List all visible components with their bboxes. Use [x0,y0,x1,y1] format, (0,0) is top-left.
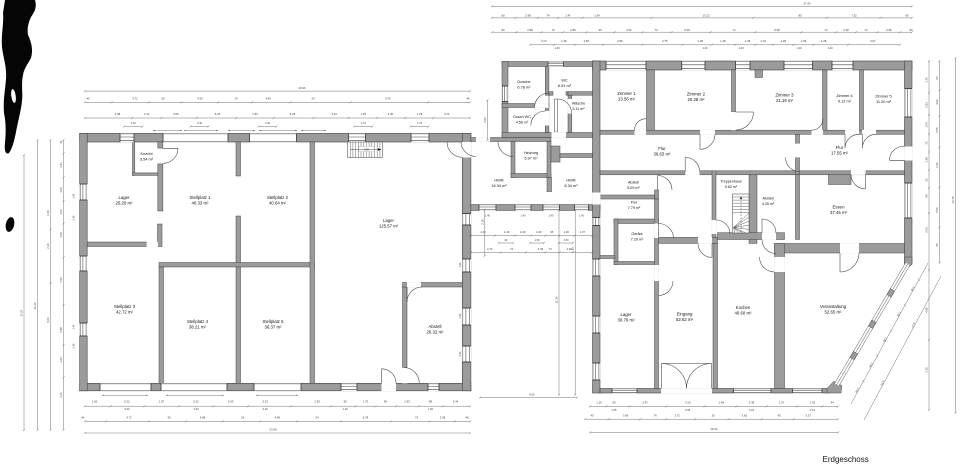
svg-text:Zimmer 3: Zimmer 3 [775,93,794,98]
svg-text:3.10: 3.10 [685,401,691,405]
svg-text:6.78 m²: 6.78 m² [517,84,531,89]
svg-text:Abstell: Abstell [762,197,773,201]
svg-text:WC: WC [561,78,568,83]
svg-text:3.66: 3.66 [623,413,629,417]
svg-text:24: 24 [234,97,238,101]
svg-text:Essen: Essen [833,205,846,210]
svg-text:30.79 m²: 30.79 m² [618,317,636,322]
svg-text:5.25: 5.25 [290,112,296,116]
svg-text:Kochen: Kochen [736,305,751,310]
svg-text:46: 46 [86,97,90,101]
svg-text:Stellplatz 5: Stellplatz 5 [262,319,284,324]
svg-text:11.34: 11.34 [555,296,559,303]
svg-text:4.56 m²: 4.56 m² [516,120,529,124]
svg-text:74: 74 [415,416,419,420]
svg-text:1.30: 1.30 [925,367,929,373]
svg-text:9.02: 9.02 [529,393,535,397]
svg-text:9.06: 9.06 [46,317,50,323]
svg-text:2.80: 2.80 [617,39,623,43]
svg-text:3.32: 3.32 [331,112,337,116]
svg-text:4.90: 4.90 [275,416,281,420]
svg-text:Lager: Lager [119,195,131,200]
svg-text:24: 24 [316,416,320,420]
svg-text:1.28: 1.28 [745,39,751,43]
svg-text:1.40: 1.40 [554,46,560,50]
svg-text:23.96: 23.96 [299,86,306,90]
svg-text:26.32 m²: 26.32 m² [427,329,445,334]
svg-text:11.20 m²: 11.20 m² [876,99,892,104]
svg-text:Treppenhaus: Treppenhaus [720,180,741,184]
svg-text:3.37: 3.37 [805,413,811,417]
svg-text:1.48: 1.48 [925,157,929,163]
svg-text:2.36: 2.36 [538,247,544,251]
svg-text:4.35 m²: 4.35 m² [762,202,775,206]
svg-text:24: 24 [241,416,245,420]
svg-text:2.98: 2.98 [525,14,531,18]
svg-text:1.40: 1.40 [343,407,349,411]
svg-text:1.25: 1.25 [361,112,367,116]
svg-text:HWR: HWR [494,178,503,183]
svg-text:40.64 m²: 40.64 m² [269,200,287,205]
svg-text:18.42: 18.42 [711,427,718,431]
svg-text:Veranstaltung: Veranstaltung [820,304,847,309]
svg-text:1.48: 1.48 [719,401,725,405]
svg-text:1.00: 1.00 [59,187,63,193]
svg-text:3.40: 3.40 [124,407,130,411]
svg-text:Zimmer 5: Zimmer 5 [875,94,891,99]
svg-text:Erdgeschoss: Erdgeschoss [823,455,869,464]
svg-text:36.37 m²: 36.37 m² [265,324,283,329]
svg-text:74: 74 [824,28,828,32]
svg-text:8.34 m²: 8.34 m² [564,183,578,188]
svg-text:1.48: 1.48 [720,39,726,43]
svg-text:3.11 m²: 3.11 m² [572,107,585,111]
svg-text:90: 90 [344,400,348,404]
svg-text:98: 98 [429,400,433,404]
svg-text:42.72 m²: 42.72 m² [116,309,134,314]
svg-text:2.28: 2.28 [843,28,849,32]
svg-text:2.46: 2.46 [388,112,394,116]
svg-text:9.08: 9.08 [774,28,780,32]
svg-text:HWR: HWR [566,178,575,183]
svg-text:1.40: 1.40 [73,215,76,220]
svg-text:23.96: 23.96 [270,428,277,432]
svg-text:46: 46 [466,97,470,101]
svg-text:1.62: 1.62 [480,230,486,234]
svg-text:2.83: 2.83 [314,400,320,404]
svg-text:74: 74 [653,413,657,417]
svg-text:2.26: 2.26 [935,162,939,168]
svg-text:5.62 m²: 5.62 m² [725,185,738,189]
svg-text:13.56 m²: 13.56 m² [618,96,636,101]
svg-text:74: 74 [654,28,658,32]
svg-text:74: 74 [732,28,736,32]
svg-text:16.13: 16.13 [33,302,37,309]
svg-text:27.42: 27.42 [804,2,811,6]
svg-text:2.44: 2.44 [453,400,459,404]
svg-text:2.15: 2.15 [810,408,816,412]
svg-text:7.32: 7.32 [851,14,857,18]
svg-text:90: 90 [905,14,909,18]
svg-text:2.05: 2.05 [935,127,939,133]
svg-text:16.34 m²: 16.34 m² [491,183,507,188]
svg-text:5.22: 5.22 [262,400,268,404]
svg-text:1.45: 1.45 [428,407,434,411]
svg-text:1.40: 1.40 [796,46,802,50]
svg-text:46: 46 [465,416,469,420]
svg-text:1.40: 1.40 [73,343,76,348]
svg-text:1.70: 1.70 [363,400,369,404]
svg-text:Stellplatz 3: Stellplatz 3 [114,304,136,309]
svg-text:Dusch WC: Dusch WC [513,115,531,119]
svg-text:2.03: 2.03 [228,400,234,404]
svg-text:3.40: 3.40 [263,407,269,411]
svg-text:1.40: 1.40 [73,193,76,198]
svg-text:1.25: 1.25 [417,112,423,116]
svg-text:2.48: 2.48 [115,112,121,116]
svg-text:1.40: 1.40 [549,215,554,218]
svg-text:4.72: 4.72 [132,97,138,101]
svg-text:90: 90 [501,14,505,18]
svg-text:40.33 m²: 40.33 m² [192,200,210,205]
svg-text:3.41: 3.41 [59,162,63,168]
svg-text:1.07: 1.07 [580,230,586,234]
svg-text:Stellplatz 2: Stellplatz 2 [267,195,289,200]
svg-text:1.73: 1.73 [361,121,367,125]
svg-text:5.06: 5.06 [935,207,939,213]
svg-text:74: 74 [549,247,553,251]
svg-text:20.28 m²: 20.28 m² [688,97,706,102]
svg-text:2.42: 2.42 [810,401,816,405]
svg-text:2.56: 2.56 [584,39,590,43]
svg-text:2.18: 2.18 [481,219,485,225]
svg-text:74: 74 [551,28,555,32]
svg-text:3.10: 3.10 [541,39,547,43]
svg-text:1.28: 1.28 [561,39,567,43]
svg-text:9.12 m²: 9.12 m² [838,98,852,103]
svg-text:52.62 m²: 52.62 m² [676,317,694,322]
svg-text:6.46: 6.46 [46,210,50,216]
svg-text:21.16 m²: 21.16 m² [776,98,794,103]
svg-text:Geräte: Geräte [631,232,642,236]
svg-text:90: 90 [501,28,505,32]
svg-text:2.16: 2.16 [46,243,50,249]
svg-text:1.00: 1.00 [536,230,542,234]
svg-text:5.09 m²: 5.09 m² [627,186,640,190]
svg-text:3.14: 3.14 [444,112,450,116]
svg-text:2.98: 2.98 [527,28,533,32]
svg-text:4.88: 4.88 [200,416,206,420]
svg-text:1.40: 1.40 [459,351,462,356]
svg-text:95: 95 [550,230,554,234]
svg-text:1.03: 1.03 [144,112,150,116]
svg-text:4.90: 4.90 [925,307,929,313]
svg-text:1.45: 1.45 [611,408,617,412]
svg-text:36.63 m²: 36.63 m² [654,151,672,156]
svg-text:1.63: 1.63 [59,357,63,363]
svg-text:5.22: 5.22 [193,400,199,404]
svg-text:44: 44 [831,401,835,405]
svg-text:74: 74 [864,28,868,32]
svg-text:1.40: 1.40 [485,215,490,218]
svg-text:5.08: 5.08 [684,28,690,32]
svg-text:Zimmer 4: Zimmer 4 [836,93,853,98]
svg-text:1.63: 1.63 [59,209,63,215]
svg-text:72: 72 [925,141,929,145]
svg-text:1.73: 1.73 [417,121,423,125]
svg-text:2.93: 2.93 [925,102,929,108]
svg-text:1.76: 1.76 [925,77,929,83]
svg-text:50: 50 [168,416,172,420]
svg-text:1.40: 1.40 [459,313,462,318]
svg-text:3.54 m²: 3.54 m² [140,156,154,161]
svg-text:3.40: 3.40 [265,121,271,125]
svg-text:2.00: 2.00 [925,227,929,233]
svg-text:Heizung: Heizung [524,150,538,155]
svg-text:Wäsche: Wäsche [572,102,585,106]
svg-text:1.19: 1.19 [596,401,602,405]
svg-text:3.41: 3.41 [59,392,63,398]
svg-text:Flur: Flur [836,145,844,150]
svg-text:1.50: 1.50 [534,238,540,242]
svg-text:5.97 m²: 5.97 m² [524,155,538,160]
svg-text:4.93: 4.93 [197,97,203,101]
svg-text:1.87: 1.87 [159,400,165,404]
svg-text:4.07: 4.07 [870,39,876,43]
svg-text:1.28: 1.28 [698,39,704,43]
svg-text:45: 45 [935,243,939,247]
svg-text:1.04: 1.04 [925,122,929,128]
svg-text:Zimmer 1: Zimmer 1 [617,91,636,96]
svg-text:4.72: 4.72 [126,416,132,420]
svg-text:5.25: 5.25 [215,112,221,116]
svg-text:38.21 m²: 38.21 m² [189,324,207,329]
svg-text:Flur: Flur [658,146,666,151]
svg-text:1.00: 1.00 [564,230,570,234]
svg-text:3.06: 3.06 [440,416,446,420]
svg-text:Lager: Lager [621,312,633,317]
svg-text:25.20 m²: 25.20 m² [116,200,134,205]
svg-text:52.65 m²: 52.65 m² [825,309,843,314]
svg-text:1.06: 1.06 [92,400,98,404]
svg-text:1.50: 1.50 [563,238,569,242]
svg-text:7.00: 7.00 [59,277,63,283]
svg-text:80: 80 [798,14,802,18]
svg-text:17.67: 17.67 [20,309,24,316]
svg-text:2.86: 2.86 [570,28,576,32]
svg-text:2.34: 2.34 [594,14,600,18]
svg-text:17.55 m²: 17.55 m² [831,150,849,155]
svg-text:40: 40 [590,413,594,417]
svg-text:13.22: 13.22 [703,14,710,18]
svg-text:1.00: 1.00 [59,232,63,238]
svg-text:4.06: 4.06 [935,99,939,105]
svg-text:1.73: 1.73 [571,247,575,253]
svg-text:3.65: 3.65 [742,413,748,417]
svg-text:2.88: 2.88 [59,327,63,333]
svg-text:Flur: Flur [631,201,638,205]
svg-text:3.51: 3.51 [626,28,632,32]
svg-text:1.19: 1.19 [504,230,510,234]
svg-text:40.60 m²: 40.60 m² [735,310,753,315]
svg-text:3.40: 3.40 [197,121,203,125]
svg-text:2.80: 2.80 [364,149,369,152]
svg-text:6.91 m²: 6.91 m² [558,83,572,88]
svg-text:1.09: 1.09 [801,39,807,43]
svg-text:1.40: 1.40 [579,215,584,218]
svg-text:1.00: 1.00 [520,230,526,234]
svg-text:90: 90 [598,28,602,32]
svg-text:2.74: 2.74 [487,247,493,251]
svg-text:Eingang: Eingang [677,312,693,317]
svg-text:1.40: 1.40 [73,324,76,329]
svg-text:2.87: 2.87 [642,401,648,405]
svg-text:1.40: 1.40 [738,46,744,50]
svg-text:Zimmer 2: Zimmer 2 [687,92,706,97]
svg-text:7.29 m²: 7.29 m² [631,237,644,241]
svg-text:24: 24 [311,97,315,101]
svg-text:7.79 m²: 7.79 m² [628,206,641,210]
svg-text:50: 50 [161,97,165,101]
svg-text:40: 40 [778,413,782,417]
svg-text:6.78: 6.78 [363,416,369,420]
svg-text:6.76: 6.76 [385,97,391,101]
svg-text:1.40: 1.40 [131,121,137,125]
svg-text:Abstell: Abstell [628,181,639,185]
svg-text:1.40: 1.40 [827,46,833,50]
svg-text:Stellplatz 1: Stellplatz 1 [189,195,211,200]
svg-text:Lager: Lager [383,218,395,223]
svg-text:37.45 m²: 37.45 m² [830,210,848,215]
svg-text:1.40: 1.40 [702,46,708,50]
svg-text:90: 90 [909,28,913,32]
svg-text:26: 26 [925,178,929,182]
svg-text:2.80: 2.80 [886,28,892,32]
svg-text:3.05: 3.05 [173,112,179,116]
svg-text:3.40: 3.40 [193,407,199,411]
svg-text:1.93: 1.93 [404,400,410,404]
svg-text:46: 46 [81,416,85,420]
svg-text:125.57 m²: 125.57 m² [379,223,399,228]
svg-text:1.40: 1.40 [459,262,462,267]
svg-text:74: 74 [546,14,550,18]
svg-text:90: 90 [384,400,388,404]
svg-text:40: 40 [612,401,616,405]
svg-text:2.00: 2.00 [483,117,487,123]
svg-text:41: 41 [59,140,63,144]
svg-text:13.78: 13.78 [951,196,955,203]
svg-text:Dusche: Dusche [517,79,530,84]
svg-text:2.95: 2.95 [685,408,691,412]
svg-text:1.40: 1.40 [521,215,526,218]
svg-text:4.90: 4.90 [265,97,271,101]
svg-text:1.47: 1.47 [565,14,571,18]
svg-text:Abstell: Abstell [429,324,442,329]
svg-text:1.93: 1.93 [252,112,258,116]
svg-text:2.75: 2.75 [662,39,668,43]
svg-text:90: 90 [925,194,929,198]
svg-text:1.28: 1.28 [781,39,787,43]
svg-text:74: 74 [510,247,514,251]
svg-text:Knecht: Knecht [140,151,153,156]
svg-text:2.10: 2.10 [760,39,766,43]
svg-text:1.37: 1.37 [779,401,785,405]
svg-text:5.22: 5.22 [124,400,130,404]
svg-text:3.72: 3.72 [674,413,680,417]
svg-text:20: 20 [712,413,716,417]
svg-text:1.28: 1.28 [821,39,827,43]
svg-text:60: 60 [935,76,939,80]
svg-text:2.38: 2.38 [749,401,755,405]
svg-text:Stellplatz 4: Stellplatz 4 [187,319,209,324]
svg-text:2.22: 2.22 [749,408,755,412]
